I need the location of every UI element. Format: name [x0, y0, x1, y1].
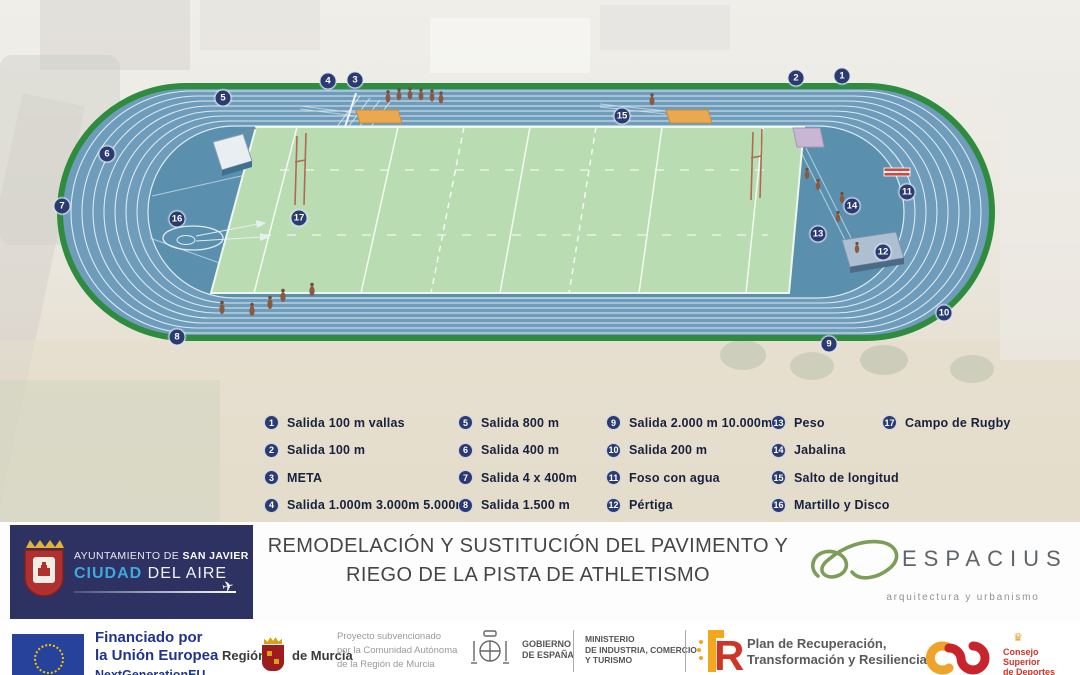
- legend-label: META: [287, 471, 322, 485]
- legend-number-badge: 2: [264, 443, 279, 458]
- legend-label: Salida 200 m: [629, 443, 707, 457]
- legend-item: 15Salto de longitud: [771, 468, 899, 487]
- legend-label: Salto de longitud: [794, 471, 899, 485]
- track-marker-10: 10: [936, 305, 953, 322]
- legend-label: Salida 1.500 m: [481, 498, 570, 512]
- legend-number-badge: 6: [458, 443, 473, 458]
- track-marker-15: 15: [614, 108, 631, 125]
- track-marker-16: 16: [169, 211, 186, 228]
- legend-item: 10Salida 200 m: [606, 441, 772, 460]
- legend-label: Foso con agua: [629, 471, 720, 485]
- legend-item: 16Martillo y Disco: [771, 496, 899, 515]
- project-title-line2: RIEGO DE LA PISTA DE ATHLETISMO: [258, 561, 798, 590]
- track-marker-7: 7: [54, 198, 71, 215]
- legend-label: Jabalina: [794, 443, 846, 457]
- track-marker-17: 17: [291, 210, 308, 227]
- murcia-emblem-mark: [274, 659, 279, 664]
- espacius-name: ESPACIUS: [902, 546, 1068, 572]
- legend-number-badge: 10: [606, 443, 621, 458]
- legend-column: 9Salida 2.000 m 10.000m10Salida 200 m11F…: [606, 413, 772, 522]
- plan-text: Plan de Recuperación, Transformación y R…: [747, 636, 927, 668]
- aerial-photo-background: 1234567891011121314151617 1Salida 100 m …: [0, 0, 1080, 522]
- legend-label: Salida 1.000m 3.000m 5.000m: [287, 498, 467, 512]
- airplane-icon: ✈: [220, 577, 235, 596]
- legend-column: 1Salida 100 m vallas2Salida 100 m3META4S…: [264, 413, 467, 522]
- san-javier-coat-of-arms-icon: [22, 538, 66, 602]
- legend-number-badge: 1: [264, 415, 279, 430]
- gobierno-line1: GOBIERNO: [522, 639, 574, 650]
- legend-item: 2Salida 100 m: [264, 441, 467, 460]
- eu-stars-icon: [34, 644, 64, 674]
- subsidy-text: Proyecto subvencionado por la Comunidad …: [337, 630, 457, 672]
- project-title-line1: REMODELACIÓN Y SUSTITUCIÓN DEL PAVIMENTO…: [258, 532, 798, 561]
- legend-item: 17Campo de Rugby: [882, 413, 1011, 432]
- espacius-tagline: arquitectura y urbanismo: [858, 592, 1068, 603]
- footer: AYUNTAMIENTO DE SAN JAVIER CIUDAD DEL AI…: [0, 522, 1080, 623]
- plan-line1: Plan de Recuperación,: [747, 636, 927, 652]
- legend-number-badge: 7: [458, 470, 473, 485]
- track-marker-5: 5: [215, 90, 232, 107]
- csd-text: Consejo Superior de Deportes: [1003, 647, 1055, 675]
- murcia-shield-icon: [262, 643, 284, 673]
- gobierno-espana-text: GOBIERNO DE ESPAÑA: [522, 639, 574, 661]
- plan-line2: Transformación y Resiliencia: [747, 652, 927, 668]
- track-marker-1: 1: [834, 68, 851, 85]
- plan-recuperacion-logo-icon: R: [694, 626, 744, 675]
- subsidy-line1: Proyecto subvencionado: [337, 630, 457, 644]
- legend-item: 9Salida 2.000 m 10.000m: [606, 413, 772, 432]
- track-marker-4: 4: [320, 73, 337, 90]
- legend-label: Martillo y Disco: [794, 498, 890, 512]
- espacius-logo: ESPACIUS arquitectura y urbanismo: [798, 522, 1080, 623]
- legend-item: 6Salida 400 m: [458, 441, 577, 460]
- legend-number-badge: 16: [771, 498, 786, 513]
- ministerio-line2: DE INDUSTRIA, COMERCIO: [585, 645, 697, 656]
- subsidy-line2: por la Comunidad Autónoma: [337, 644, 457, 658]
- municipality-line2: CIUDAD DEL AIRE: [74, 565, 227, 583]
- legend-label: Salida 2.000 m 10.000m: [629, 416, 772, 430]
- legend-number-badge: 9: [606, 415, 621, 430]
- track-marker-11: 11: [899, 184, 916, 201]
- csd-line1: Consejo: [1003, 647, 1055, 657]
- track-marker-6: 6: [99, 146, 116, 163]
- legend-number-badge: 14: [771, 443, 786, 458]
- legend-item: 4Salida 1.000m 3.000m 5.000m: [264, 496, 467, 515]
- murcia-emblem-mark: [267, 651, 272, 656]
- funding-strip: Financiado por la Unión Europea NextGene…: [0, 623, 1080, 675]
- contrail-line: [74, 591, 236, 593]
- spain-coat-of-arms-icon: [468, 629, 512, 675]
- track-marker-14: 14: [844, 198, 861, 215]
- legend-label: Salida 100 m vallas: [287, 416, 405, 430]
- legend-number-badge: 15: [771, 470, 786, 485]
- track-marker-3: 3: [347, 72, 364, 89]
- legend-item: 7Salida 4 x 400m: [458, 468, 577, 487]
- long-jump-pit: [356, 110, 402, 123]
- legend-number-badge: 5: [458, 415, 473, 430]
- legend-label: Salida 400 m: [481, 443, 559, 457]
- throw-pad: [793, 128, 824, 147]
- divider: [573, 630, 574, 672]
- legend-number-badge: 8: [458, 498, 473, 513]
- legend-item: 3META: [264, 468, 467, 487]
- legend-number-badge: 17: [882, 415, 897, 430]
- legend-label: Salida 100 m: [287, 443, 365, 457]
- svg-text:R: R: [714, 632, 744, 675]
- legend-column: 5Salida 800 m6Salida 400 m7Salida 4 x 40…: [458, 413, 577, 522]
- csd-crown-icon: ♛: [1013, 631, 1023, 644]
- murcia-crown-icon: [264, 636, 282, 644]
- track-marker-13: 13: [810, 226, 827, 243]
- legend-number-badge: 13: [771, 415, 786, 430]
- track-marker-12: 12: [875, 244, 892, 261]
- legend-item: 1Salida 100 m vallas: [264, 413, 467, 432]
- ministerio-text: MINISTERIO DE INDUSTRIA, COMERCIO Y TURI…: [585, 634, 697, 666]
- legend-label: Salida 800 m: [481, 416, 559, 430]
- legend-number-badge: 12: [606, 498, 621, 513]
- municipality-line1: AYUNTAMIENTO DE SAN JAVIER: [74, 550, 249, 562]
- ministerio-line1: MINISTERIO: [585, 634, 697, 645]
- eu-funding-line1: Financiado por: [95, 629, 218, 647]
- csd-logo-icon: [915, 638, 995, 675]
- legend: 1Salida 100 m vallas2Salida 100 m3META4S…: [0, 413, 1080, 522]
- legend-item: 14Jabalina: [771, 441, 899, 460]
- eu-funding-line2: la Unión Europea: [95, 647, 218, 665]
- csd-line2: Superior: [1003, 657, 1055, 667]
- long-jump-pit: [666, 110, 712, 123]
- poster: 1234567891011121314151617 1Salida 100 m …: [0, 0, 1080, 675]
- espacius-swirl-icon: [804, 530, 908, 594]
- legend-item: 12Pértiga: [606, 496, 772, 515]
- project-title: REMODELACIÓN Y SUSTITUCIÓN DEL PAVIMENTO…: [258, 532, 798, 590]
- eu-flag-icon: [12, 634, 84, 675]
- legend-item: 11Foso con agua: [606, 468, 772, 487]
- legend-column: 13Peso14Jabalina15Salto de longitud16Mar…: [771, 413, 899, 522]
- eu-funding-text: Financiado por la Unión Europea: [95, 629, 218, 665]
- san-javier-logo: AYUNTAMIENTO DE SAN JAVIER CIUDAD DEL AI…: [10, 525, 253, 619]
- legend-number-badge: 3: [264, 470, 279, 485]
- legend-label: Pértiga: [629, 498, 673, 512]
- csd-line3: de Deportes: [1003, 667, 1055, 675]
- legend-label: Peso: [794, 416, 825, 430]
- subsidy-line3: de la Región de Murcia: [337, 658, 457, 672]
- divider: [685, 630, 686, 672]
- murcia-shield-body: [262, 645, 284, 671]
- legend-item: 8Salida 1.500 m: [458, 496, 577, 515]
- gobierno-line2: DE ESPAÑA: [522, 650, 574, 661]
- legend-label: Campo de Rugby: [905, 416, 1011, 430]
- track-marker-2: 2: [788, 70, 805, 87]
- murcia-label-left: Región: [222, 648, 266, 663]
- track-marker-9: 9: [821, 336, 838, 353]
- legend-label: Salida 4 x 400m: [481, 471, 577, 485]
- legend-item: 5Salida 800 m: [458, 413, 577, 432]
- legend-column: 17Campo de Rugby: [882, 413, 1011, 441]
- legend-number-badge: 4: [264, 498, 279, 513]
- legend-number-badge: 11: [606, 470, 621, 485]
- water-jump-barrier: [884, 168, 910, 176]
- legend-item: 13Peso: [771, 413, 899, 432]
- nextgeneration-eu-text: NextGenerationEU: [95, 668, 205, 675]
- ministerio-line3: Y TURISMO: [585, 655, 697, 666]
- track-marker-8: 8: [169, 329, 186, 346]
